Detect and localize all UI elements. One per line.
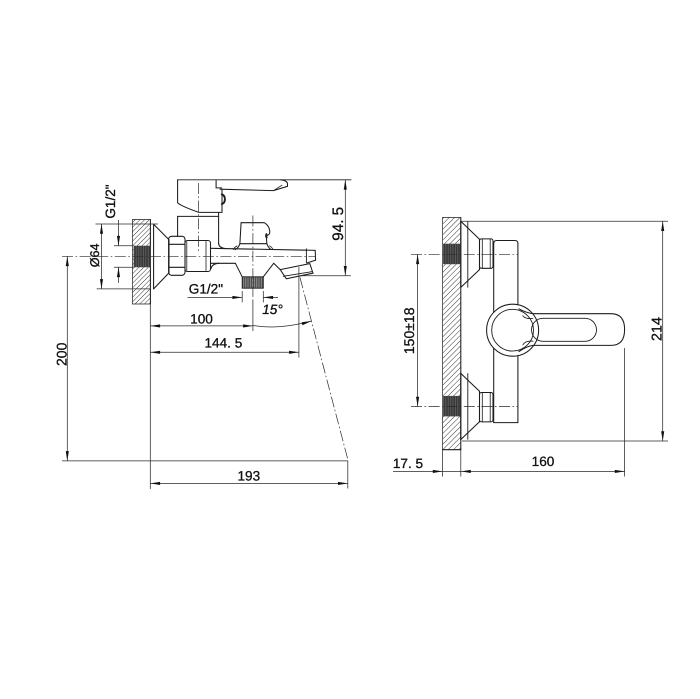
svg-text:94. 5: 94. 5 (330, 207, 347, 241)
svg-text:G1/2": G1/2" (103, 184, 118, 218)
svg-text:17. 5: 17. 5 (393, 456, 423, 471)
svg-text:15°: 15° (262, 302, 283, 317)
svg-text:G1/2": G1/2" (189, 282, 223, 297)
svg-text:214: 214 (649, 317, 665, 341)
svg-text:144. 5: 144. 5 (205, 336, 243, 351)
svg-text:100: 100 (190, 312, 213, 327)
svg-text:150±18: 150±18 (401, 307, 417, 354)
svg-text:193: 193 (237, 468, 260, 483)
svg-text:Ø64: Ø64 (88, 243, 102, 267)
svg-text:200: 200 (53, 342, 69, 366)
svg-text:160: 160 (532, 454, 555, 469)
